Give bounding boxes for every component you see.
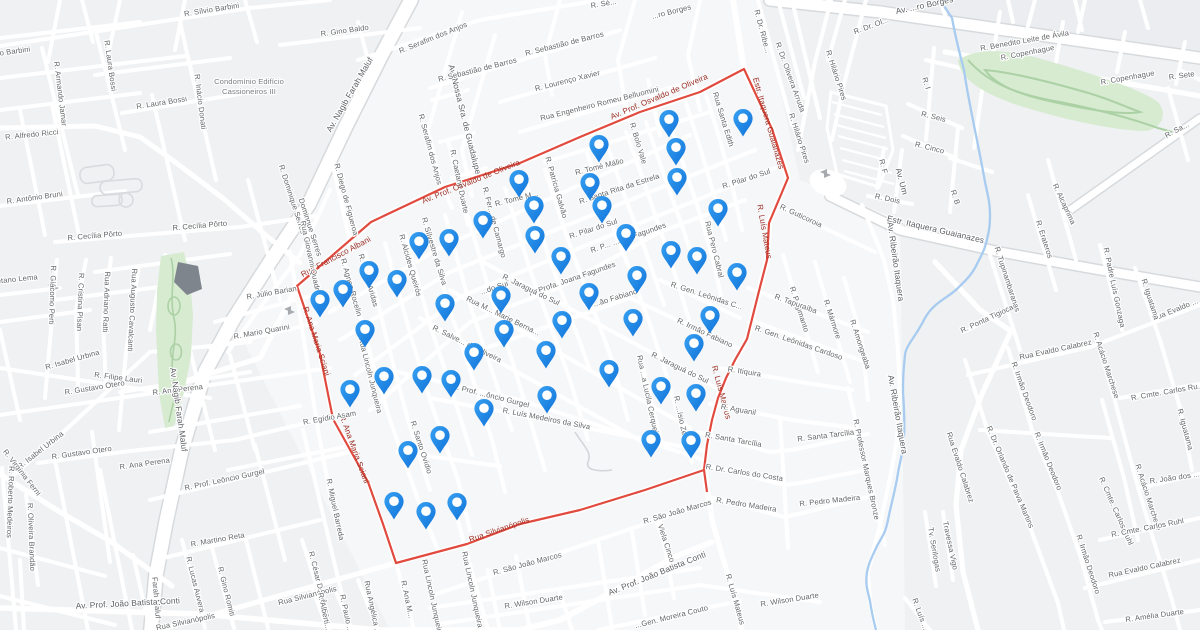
svg-text:Condomínio Edifício: Condomínio Edifício [214,77,284,86]
svg-text:Cassioneiros III: Cassioneiros III [222,87,276,96]
